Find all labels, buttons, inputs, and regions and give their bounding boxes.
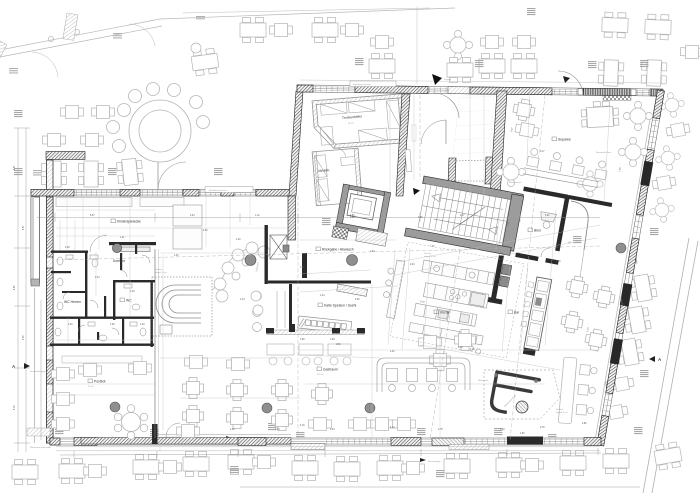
svg-text:1.40: 1.40	[140, 324, 145, 326]
svg-text:2.56: 2.56	[556, 261, 561, 263]
svg-text:1.34: 1.34	[330, 429, 335, 431]
svg-text:3.21: 3.21	[545, 215, 550, 217]
svg-text:2.36: 2.36	[23, 335, 25, 340]
svg-text:2.78: 2.78	[438, 429, 443, 431]
svg-text:Hauseingang: Hauseingang	[428, 461, 441, 463]
svg-text:1.12: 1.12	[458, 347, 463, 349]
svg-text:1.48: 1.48	[65, 247, 70, 249]
svg-text:Küche: Küche	[440, 311, 450, 315]
svg-text:8.76: 8.76	[14, 405, 16, 410]
svg-text:2.36: 2.36	[390, 351, 395, 353]
svg-text:3.34: 3.34	[190, 215, 195, 217]
svg-text:Separée: Separée	[558, 138, 571, 142]
svg-text:1.50: 1.50	[520, 433, 525, 435]
svg-text:1.98: 1.98	[300, 339, 305, 341]
svg-text:4.14: 4.14	[390, 427, 395, 429]
svg-text:1.10: 1.10	[255, 215, 260, 217]
svg-text:4.57: 4.57	[14, 165, 16, 170]
svg-text:1.40: 1.40	[174, 255, 179, 257]
svg-text:2.40: 2.40	[410, 264, 415, 266]
svg-text:5.67: 5.67	[90, 215, 95, 217]
svg-text:2.34: 2.34	[95, 277, 100, 279]
svg-text:Wartebereich: Wartebereich	[509, 181, 522, 184]
svg-text:15 m²: 15 m²	[88, 385, 94, 388]
svg-text:2.90: 2.90	[336, 344, 341, 346]
svg-text:WC: WC	[126, 299, 132, 303]
svg-text:1.45: 1.45	[130, 291, 135, 293]
svg-text:3.92: 3.92	[300, 267, 305, 269]
svg-text:Zugang: Zugang	[444, 79, 452, 81]
svg-text:2.36: 2.36	[203, 230, 208, 232]
svg-text:Kinderspielecke: Kinderspielecke	[117, 219, 141, 223]
svg-text:4.45: 4.45	[14, 285, 16, 290]
svg-text:4.86: 4.86	[418, 217, 423, 219]
svg-text:2.36: 2.36	[350, 217, 355, 219]
svg-text:4.16: 4.16	[300, 425, 305, 427]
svg-text:Pflasterung Fahrradab.: Pflasterung Fahrradab.	[30, 446, 52, 449]
svg-text:abged. 3 cm: abged. 3 cm	[556, 412, 568, 414]
svg-text:3.17: 3.17	[540, 151, 545, 153]
svg-text:Bar: Bar	[514, 311, 520, 315]
svg-text:1.10: 1.10	[500, 429, 505, 431]
svg-text:1.60: 1.60	[330, 339, 335, 341]
svg-text:Decken: Decken	[155, 269, 163, 271]
svg-text:2.78: 2.78	[540, 427, 545, 429]
svg-text:1.44: 1.44	[320, 295, 325, 297]
svg-text:WC Herren: WC Herren	[64, 300, 81, 304]
svg-text:Mauerwerk: Mauerwerk	[478, 379, 489, 382]
svg-text:Postbot: Postbot	[94, 380, 106, 384]
svg-text:4.57: 4.57	[23, 225, 25, 230]
svg-text:Korridor: Korridor	[113, 259, 126, 263]
svg-text:1.10: 1.10	[470, 349, 475, 351]
svg-text:Raumteiler/Sofa: Raumteiler/Sofa	[596, 151, 612, 154]
svg-text:abged. 3 cm: abged. 3 cm	[155, 272, 167, 274]
svg-text:1.26: 1.26	[110, 324, 115, 326]
svg-text:Grundstücksgrenze: Grundstücksgrenze	[30, 370, 49, 373]
svg-text:Rückgabe / Abwasch: Rückgabe / Abwasch	[322, 248, 354, 252]
svg-text:Entlüftung Terrasse: Entlüftung Terrasse	[209, 189, 228, 192]
svg-text:1.21: 1.21	[120, 237, 125, 239]
svg-text:1.44: 1.44	[240, 299, 245, 301]
svg-text:Entlüftung Terrasse: Entlüftung Terrasse	[353, 83, 372, 86]
svg-text:210 m²: 210 m²	[317, 373, 324, 376]
svg-text:1.40: 1.40	[236, 239, 241, 241]
svg-text:1.20: 1.20	[68, 324, 73, 326]
svg-text:3.17: 3.17	[460, 215, 465, 217]
svg-text:4.90: 4.90	[355, 299, 360, 301]
svg-text:2.86: 2.86	[582, 423, 587, 425]
svg-text:Decken: Decken	[424, 253, 432, 255]
svg-text:1.34: 1.34	[275, 429, 280, 431]
svg-text:Decken: Decken	[556, 409, 564, 411]
svg-text:1.36: 1.36	[230, 429, 235, 431]
svg-text:1.60: 1.60	[370, 251, 375, 253]
svg-text:Kalte Speisen / Sushi: Kalte Speisen / Sushi	[324, 304, 356, 308]
svg-text:Gastraum: Gastraum	[323, 368, 338, 372]
svg-text:Büro: Büro	[534, 229, 541, 233]
